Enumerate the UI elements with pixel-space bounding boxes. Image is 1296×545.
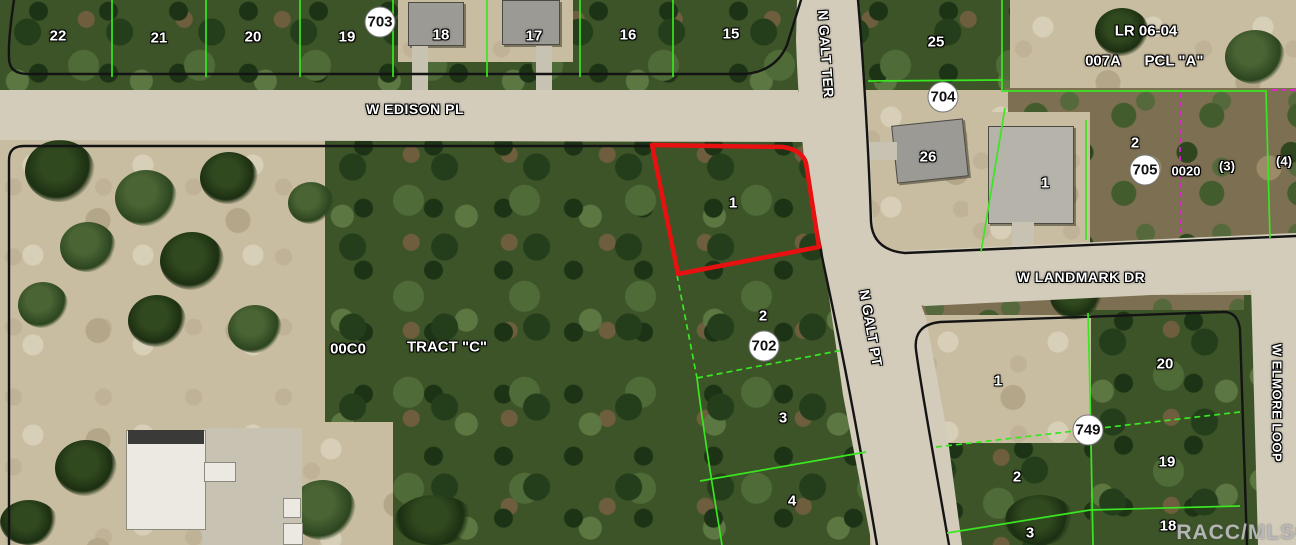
annotation-007a: 007A (1085, 54, 1121, 69)
lot-label-2-galt: 2 (759, 309, 767, 324)
tree (60, 222, 116, 272)
annotation-paren-3: (3) (1219, 160, 1235, 173)
tree (905, 255, 945, 291)
annotation-pcl-a: PCL "A" (1145, 54, 1204, 69)
lot-label-1-block: 1 (994, 374, 1002, 389)
annotation-paren-4: (4) (1276, 155, 1292, 168)
lot-label-20-top: 20 (245, 30, 262, 45)
annotation-00c0: 00C0 (330, 342, 366, 357)
tree (115, 170, 177, 226)
tree (1005, 495, 1075, 545)
street-label-w-elmore-loop: W ELMORE LOOP (1271, 344, 1284, 462)
lot-label-4-galt: 4 (788, 494, 796, 509)
block-circle-705: 705 (1130, 155, 1161, 186)
lot-label-19-top: 19 (339, 30, 356, 45)
tree (228, 305, 282, 353)
block-circle-702: 702 (749, 331, 780, 362)
block-circle-749: 749 (1073, 415, 1104, 446)
driveway-704 (845, 142, 897, 160)
tree (25, 140, 95, 202)
lot-label-17: 17 (526, 29, 543, 44)
lot-label-20-block: 20 (1157, 357, 1174, 372)
racc-mls-watermark: RACC/MLS© (1176, 521, 1296, 545)
lot-label-18-block: 18 (1160, 519, 1177, 534)
block-circle-704: 704 (928, 82, 959, 113)
lot-label-22: 22 (50, 29, 67, 44)
annotation-lr-06-04: LR 06-04 (1115, 24, 1178, 39)
lot-label-18-top: 18 (433, 28, 450, 43)
lot-label-21: 21 (151, 31, 168, 46)
lot-label-16: 16 (620, 28, 637, 43)
tree (128, 295, 186, 347)
tree (1225, 30, 1285, 84)
lot-label-1-landmark: 1 (1041, 176, 1049, 191)
driveway-lot17 (536, 46, 552, 98)
street-label-w-landmark-dr: W LANDMARK DR (1017, 270, 1146, 284)
lot-label-15: 15 (723, 27, 740, 42)
tree (200, 152, 258, 204)
driveway-lot1-landmark (1012, 222, 1034, 262)
building-bottom-left (126, 430, 206, 530)
lot-label-26: 26 (920, 150, 937, 165)
lot-label-3-galt: 3 (779, 411, 787, 426)
clearing-lot1-block (915, 315, 1091, 443)
lot-label-19-block: 19 (1159, 455, 1176, 470)
annotation-tract-c: TRACT "C" (407, 340, 487, 355)
tree (55, 440, 117, 496)
house-lot1-landmark (988, 126, 1074, 224)
trailer-2 (283, 523, 303, 545)
street-label-w-edison-pl: W EDISON PL (366, 102, 464, 116)
lot-label-25: 25 (928, 35, 945, 50)
tree (0, 500, 58, 545)
forest-block-right (1085, 310, 1245, 545)
tree (18, 282, 68, 328)
driveway-lot18 (412, 46, 428, 98)
lot-label-2-705: 2 (1131, 136, 1139, 151)
trailer-1 (283, 498, 301, 518)
building-roof-dark-section (128, 430, 204, 444)
lot-label-2-block: 2 (1013, 470, 1021, 485)
tree (160, 232, 224, 290)
tree (395, 495, 475, 545)
lot-label-1-highlight: 1 (729, 196, 737, 211)
tree (288, 182, 334, 224)
building-annex (204, 462, 236, 482)
lot-label-3-block: 3 (1026, 526, 1034, 541)
block-circle-703: 703 (365, 7, 396, 38)
forest-elmore-strip (1244, 295, 1258, 545)
annotation-0020: 0020 (1172, 165, 1201, 178)
aerial-parcel-map-canvas[interactable]: W EDISON PL N GALT TER N GALT PT W LANDM… (0, 0, 1296, 545)
